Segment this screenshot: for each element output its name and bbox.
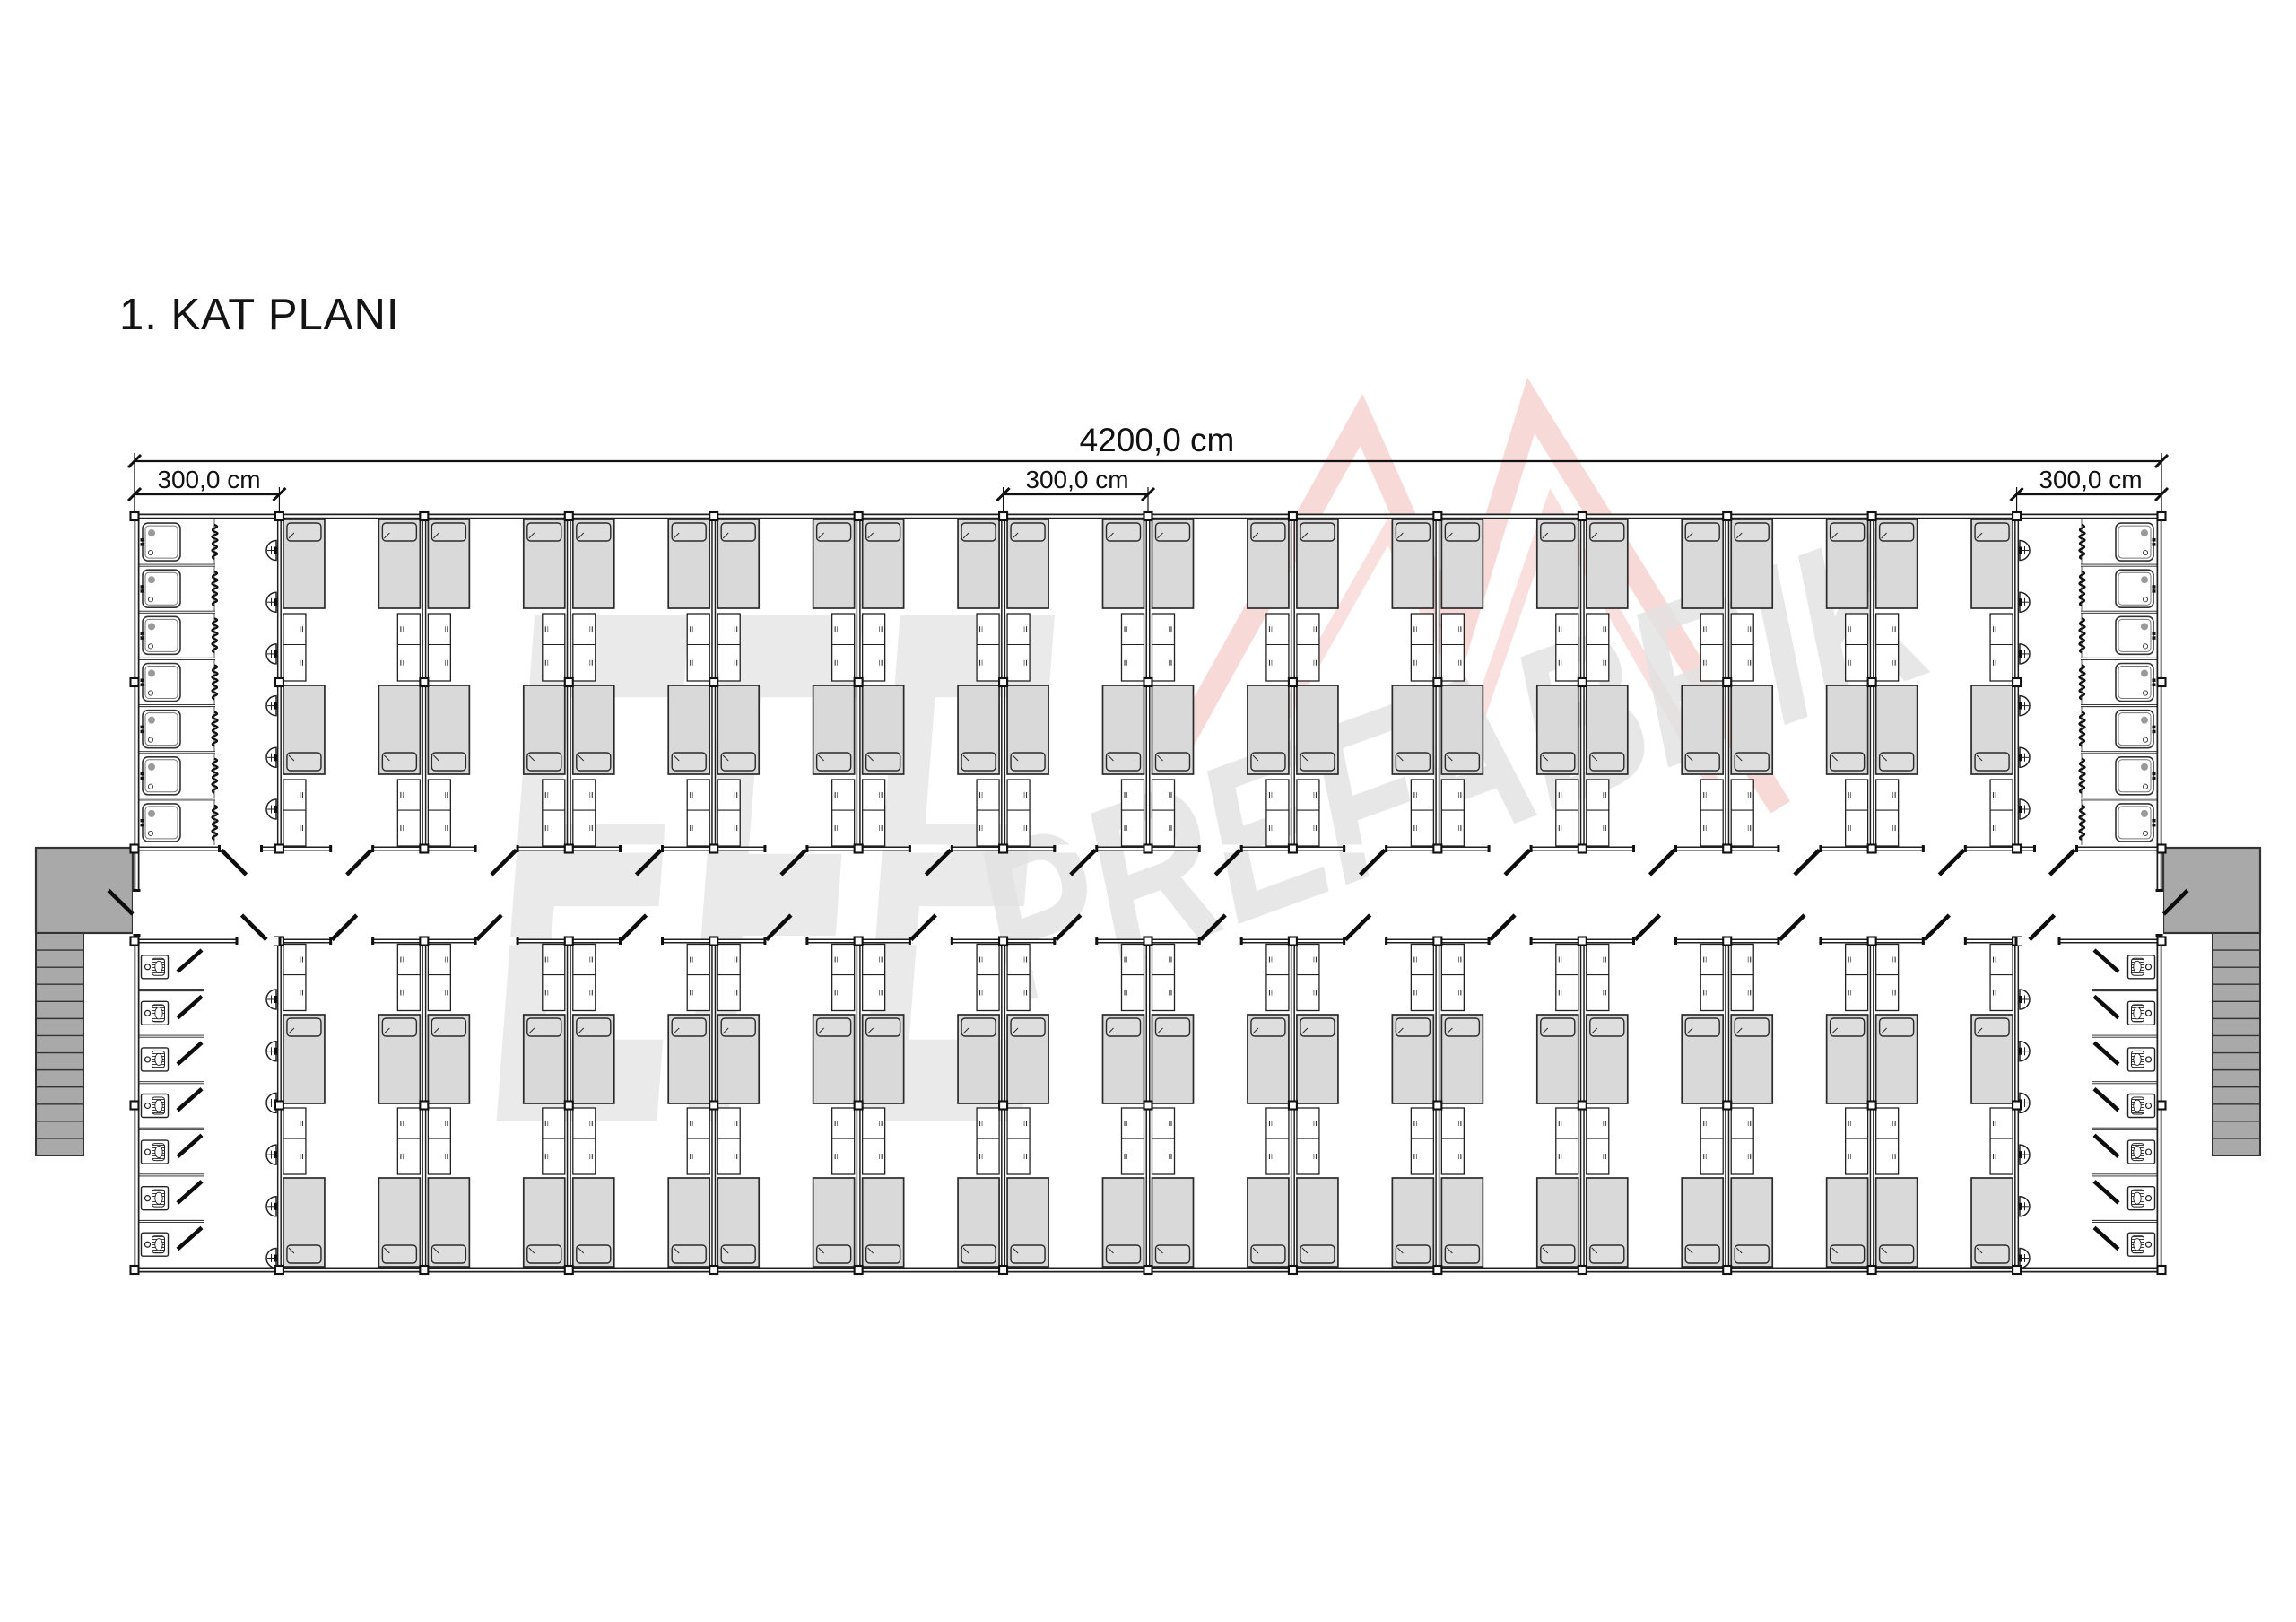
column-post [131, 1266, 139, 1274]
room-module [283, 945, 420, 1268]
wardrobe [573, 614, 596, 681]
wardrobe [1587, 780, 1609, 846]
faucet-icon [2152, 777, 2156, 780]
bed [958, 1178, 999, 1267]
bed [283, 1015, 325, 1103]
column-post [565, 512, 573, 520]
pillow [721, 523, 755, 541]
wardrobe [1587, 945, 1609, 1011]
stair-landing [2163, 848, 2260, 933]
squat-toilet [2128, 1140, 2155, 1164]
wardrobe [977, 945, 999, 1011]
washbasin [2018, 644, 2030, 664]
column-post [1578, 937, 1587, 946]
shower-tray [141, 664, 181, 702]
pillow [1735, 523, 1769, 541]
wardrobe [1876, 780, 1899, 846]
pillow [1011, 753, 1045, 771]
washbasin [266, 1197, 278, 1216]
bed [1682, 1015, 1723, 1103]
wardrobe [717, 1108, 740, 1174]
pillow [1156, 1018, 1190, 1036]
pillow [721, 1018, 755, 1036]
door-jamb [1922, 845, 1925, 852]
door-opening [2018, 937, 2058, 946]
shower-tray [2116, 616, 2156, 654]
pillow [672, 523, 706, 541]
column-post [1433, 512, 1441, 520]
wardrobe [1441, 614, 1464, 681]
door-jamb [1198, 845, 1201, 852]
wardrobe [687, 1108, 709, 1174]
bed [1537, 1178, 1578, 1267]
shower-head-icon [148, 810, 155, 817]
pillow [1011, 523, 1045, 541]
pillow [577, 1245, 611, 1263]
wardrobe [832, 614, 855, 681]
door-leaf [2050, 850, 2075, 876]
squat-toilet [142, 1094, 169, 1118]
door-leaf [1491, 915, 1516, 940]
door-jamb [2156, 889, 2163, 892]
bathroom-showers-left [140, 519, 279, 845]
shower-curtain [2080, 712, 2085, 746]
door-jamb [2033, 845, 2036, 852]
column-post [2158, 678, 2166, 686]
faucet-icon [2152, 679, 2156, 683]
door-leaf [178, 1182, 202, 1203]
bed [428, 519, 469, 608]
door-leaf [1650, 850, 1675, 876]
pillow [1300, 523, 1335, 541]
shower-tray [141, 711, 181, 748]
door-jamb [1385, 937, 1387, 945]
pillow [1831, 1018, 1865, 1036]
plan-title: 1. KAT PLANI [119, 291, 399, 339]
shower-head-icon [2141, 529, 2148, 536]
bed [958, 685, 999, 774]
bed [1103, 685, 1144, 774]
pillow [866, 1018, 900, 1036]
bed [573, 685, 614, 774]
column-post [1433, 1102, 1441, 1110]
column-post [1868, 845, 1876, 853]
pillow [866, 523, 900, 541]
bed [1971, 519, 2013, 608]
bed [1587, 1178, 1628, 1267]
door-leaf [222, 850, 247, 876]
door-leaf [2094, 997, 2118, 1018]
bed [1103, 1015, 1144, 1103]
bed [863, 1178, 904, 1267]
pillow [961, 523, 996, 541]
wardrobe [1876, 945, 1899, 1011]
wardrobe [397, 614, 420, 681]
wardrobe [1007, 780, 1030, 846]
pillow [527, 1245, 561, 1263]
wardrobe [687, 780, 709, 846]
door-jamb [2075, 845, 2078, 852]
pillow [817, 1245, 851, 1263]
bed [524, 1015, 565, 1103]
column-post [855, 512, 863, 520]
door-leaf [178, 950, 202, 972]
door-opening [1925, 845, 1964, 853]
washbasin [2018, 1145, 2030, 1164]
pillow [672, 1245, 706, 1263]
bed [668, 519, 709, 608]
bed [428, 1015, 469, 1103]
pillow [1300, 1245, 1335, 1263]
column-post [855, 937, 863, 946]
bed [863, 1015, 904, 1103]
bed [1103, 519, 1144, 608]
bed [378, 519, 420, 608]
bed [524, 519, 565, 608]
pillow [1590, 1018, 1624, 1036]
door-opening [1635, 937, 1674, 946]
door-leaf [347, 850, 372, 876]
stair-landing [36, 848, 133, 933]
column-post [1578, 845, 1587, 853]
door-opening [221, 845, 260, 853]
wardrobe [1731, 945, 1753, 1011]
shower-head-icon [2141, 810, 2148, 817]
column-post [420, 845, 428, 853]
wardrobe [1556, 780, 1578, 846]
column-post [709, 512, 717, 520]
bed [1297, 1015, 1338, 1103]
pillow [287, 753, 321, 771]
bed [428, 685, 469, 774]
wardrobe [428, 780, 450, 846]
floor-plan: EFE PREFABRİK 4200,0 cm 300,0 cm 300,0 c… [0, 0, 2296, 1622]
door-leaf [178, 1042, 202, 1064]
bed [1152, 685, 1194, 774]
column-post [565, 1266, 573, 1274]
door-leaf [2030, 915, 2055, 940]
bed [1731, 519, 1772, 608]
bed [863, 519, 904, 608]
door-opening [622, 937, 661, 946]
column-post [1144, 1266, 1152, 1274]
column-post [1578, 678, 1587, 686]
faucet-icon [2152, 636, 2156, 640]
door-jamb [517, 937, 519, 945]
column-post [855, 1266, 863, 1274]
column-post [2158, 512, 2166, 520]
squat-toilet [142, 1233, 169, 1256]
column-post [999, 678, 1007, 686]
faucet-icon [2152, 538, 2156, 542]
wardrobe [717, 614, 740, 681]
door-leaf [2094, 1042, 2118, 1064]
bed [1248, 1015, 1289, 1103]
column-post [2013, 1266, 2021, 1274]
pillow [1107, 753, 1141, 771]
door-opening [1925, 937, 1964, 946]
column-post [2158, 937, 2166, 946]
wardrobe [1556, 614, 1578, 681]
wardrobe [1700, 614, 1723, 681]
column-post [1723, 1266, 1731, 1274]
bed [283, 1178, 325, 1267]
shower-tray [2116, 711, 2156, 748]
pillow [431, 1245, 465, 1263]
door-opening [2036, 845, 2075, 853]
bed [813, 1015, 855, 1103]
door-leaf [2094, 1182, 2118, 1203]
pillow [1156, 753, 1190, 771]
pillow [1880, 753, 1914, 771]
stair-flight [36, 933, 83, 1155]
door-jamb [909, 845, 911, 852]
wardrobe [1990, 780, 2013, 846]
wardrobe [1297, 1108, 1319, 1174]
bed [283, 519, 325, 608]
shower-head-icon [2141, 717, 2148, 724]
wardrobe [1587, 1108, 1609, 1174]
column-post [1289, 1102, 1297, 1110]
column-post [1144, 845, 1152, 853]
faucet-icon [2152, 589, 2156, 593]
bed [813, 685, 855, 774]
washbasin [266, 799, 278, 819]
bed [1392, 1178, 1433, 1267]
shower-head-icon [148, 717, 155, 724]
pillow [1975, 753, 2009, 771]
column-post [855, 678, 863, 686]
pillow [1251, 1018, 1285, 1036]
squat-toilet [2128, 955, 2155, 979]
wardrobe [1990, 945, 2013, 1011]
wardrobe [428, 614, 450, 681]
shower-head-icon [2141, 763, 2148, 771]
shower-curtain [213, 759, 218, 793]
bed [1007, 1015, 1048, 1103]
wardrobe [1266, 945, 1289, 1011]
column-post [1723, 937, 1731, 946]
squat-toilet [2128, 1048, 2155, 1071]
door-jamb [218, 845, 221, 852]
column-post [131, 512, 139, 520]
bed [1876, 519, 1918, 608]
pillow [382, 1018, 416, 1036]
column-post [2013, 1102, 2021, 1110]
shower-curtain [213, 806, 218, 840]
shower-tray [2116, 664, 2156, 702]
faucet-icon [2152, 543, 2156, 546]
column-post [1289, 1266, 1297, 1274]
door-opening [1635, 845, 1674, 853]
pillow [1541, 1245, 1575, 1263]
dimension-total-label: 4200,0 cm [1080, 422, 1235, 458]
wardrobe [1152, 780, 1175, 846]
dimension-middle-module-label: 300,0 cm [1025, 466, 1128, 493]
wardrobe [1700, 945, 1723, 1011]
door-jamb [279, 937, 282, 945]
pillow [287, 1245, 321, 1263]
bed [958, 1015, 999, 1103]
bed [378, 1015, 420, 1103]
column-post [1723, 512, 1731, 520]
dimension-right-module-label: 300,0 cm [2039, 466, 2142, 493]
column-post [709, 937, 717, 946]
column-post [999, 937, 1007, 946]
door-opening [1491, 937, 1530, 946]
room-module [283, 519, 420, 846]
bed [1537, 1015, 1578, 1103]
bed [668, 685, 709, 774]
pillow [1251, 523, 1285, 541]
pillow [672, 753, 706, 771]
dimension-left-module-label: 300,0 cm [157, 466, 260, 493]
washbasin [2018, 990, 2030, 1009]
wardrobe [543, 614, 565, 681]
column-post [1144, 1102, 1152, 1110]
door-opening [766, 845, 805, 853]
bed [1007, 1178, 1048, 1267]
pillow [1107, 523, 1141, 541]
bed [1392, 685, 1433, 774]
squat-toilet [142, 1001, 169, 1025]
column-post [999, 512, 1007, 520]
bed [1827, 1178, 1868, 1267]
wardrobe [573, 945, 596, 1011]
wardrobe [977, 1108, 999, 1174]
wardrobe [1587, 614, 1609, 681]
faucet-icon [2152, 684, 2156, 687]
door-jamb [1819, 937, 1822, 945]
pillow [817, 1018, 851, 1036]
pillow [1735, 1018, 1769, 1036]
column-post [855, 845, 863, 853]
shower-curtain [2080, 806, 2085, 840]
pillow [817, 523, 851, 541]
wardrobe [1556, 945, 1578, 1011]
shower-tray [141, 757, 181, 795]
washbasin [266, 541, 278, 561]
floor-plan-page: EFE PREFABRİK 4200,0 cm 300,0 cm 300,0 c… [0, 0, 2296, 1622]
pillow [1445, 523, 1479, 541]
bed [1971, 685, 2013, 774]
wardrobe [1731, 780, 1753, 846]
door-opening [1779, 845, 1819, 853]
bed [1152, 1015, 1194, 1103]
room-module [1152, 945, 1289, 1268]
pillow [1735, 753, 1769, 771]
pillow [1541, 753, 1575, 771]
bed [717, 519, 759, 608]
pillow [1541, 1018, 1575, 1036]
pillow [1156, 1245, 1190, 1263]
pillow [577, 1018, 611, 1036]
shower-tray [2116, 804, 2156, 842]
column-post [420, 678, 428, 686]
pillow [1251, 1245, 1285, 1263]
bed [1682, 685, 1723, 774]
shower-curtain [213, 618, 218, 652]
pillow [1685, 753, 1719, 771]
bed [1731, 1178, 1772, 1267]
washbasin [2018, 541, 2030, 561]
wardrobe [687, 614, 709, 681]
door-opening [1345, 937, 1385, 946]
wardrobe [397, 780, 420, 846]
column-post [2158, 1266, 2166, 1274]
washbasin [266, 990, 278, 1009]
column-post [1868, 1266, 1876, 1274]
squat-toilet [2128, 1094, 2155, 1118]
pillow [527, 1018, 561, 1036]
pillow [866, 753, 900, 771]
shower-tray [2116, 757, 2156, 795]
column-post [2013, 678, 2021, 686]
bed [1876, 1178, 1918, 1267]
pillow [1156, 523, 1190, 541]
pillow [287, 523, 321, 541]
faucet-icon [141, 679, 144, 683]
pillow [1011, 1018, 1045, 1036]
door-opening [622, 845, 661, 853]
door-jamb [2058, 937, 2061, 945]
shower-curtain [2080, 618, 2085, 652]
door-opening [1201, 937, 1240, 946]
bed [863, 685, 904, 774]
faucet-icon [2152, 824, 2156, 827]
bed [1682, 1178, 1723, 1267]
column-post [1578, 1266, 1587, 1274]
column-post [1144, 512, 1152, 520]
wardrobe [687, 945, 709, 1011]
column-post [2013, 845, 2021, 853]
faucet-icon [141, 543, 144, 546]
bed [573, 1015, 614, 1103]
bed [668, 1178, 709, 1267]
column-post [999, 845, 1007, 853]
door-leaf [178, 997, 202, 1018]
washbasin [266, 592, 278, 612]
squat-toilet [2128, 1001, 2155, 1025]
door-jamb [805, 937, 808, 945]
door-leaf [178, 1135, 202, 1156]
column-post [1144, 937, 1152, 946]
wardrobe [1411, 945, 1433, 1011]
wardrobe [1700, 780, 1723, 846]
pillow [577, 753, 611, 771]
wardrobe [863, 614, 885, 681]
pillow [1107, 1245, 1141, 1263]
pillow [1590, 1245, 1624, 1263]
faucet-icon [141, 636, 144, 640]
door-jamb [1343, 845, 1345, 852]
column-post [1433, 937, 1441, 946]
door-leaf [1635, 915, 1660, 940]
pillow [1880, 1245, 1914, 1263]
pillow [431, 523, 465, 541]
washbasin [266, 644, 278, 664]
column-post [1723, 678, 1731, 686]
column-post [855, 1102, 863, 1110]
wardrobe [573, 1108, 596, 1174]
column-post [709, 1102, 717, 1110]
pillow [961, 1245, 996, 1263]
pillow [1880, 1018, 1914, 1036]
wardrobe [1297, 614, 1319, 681]
door-jamb [1488, 845, 1491, 852]
washbasin [2018, 1197, 2030, 1216]
wardrobe [832, 780, 855, 846]
